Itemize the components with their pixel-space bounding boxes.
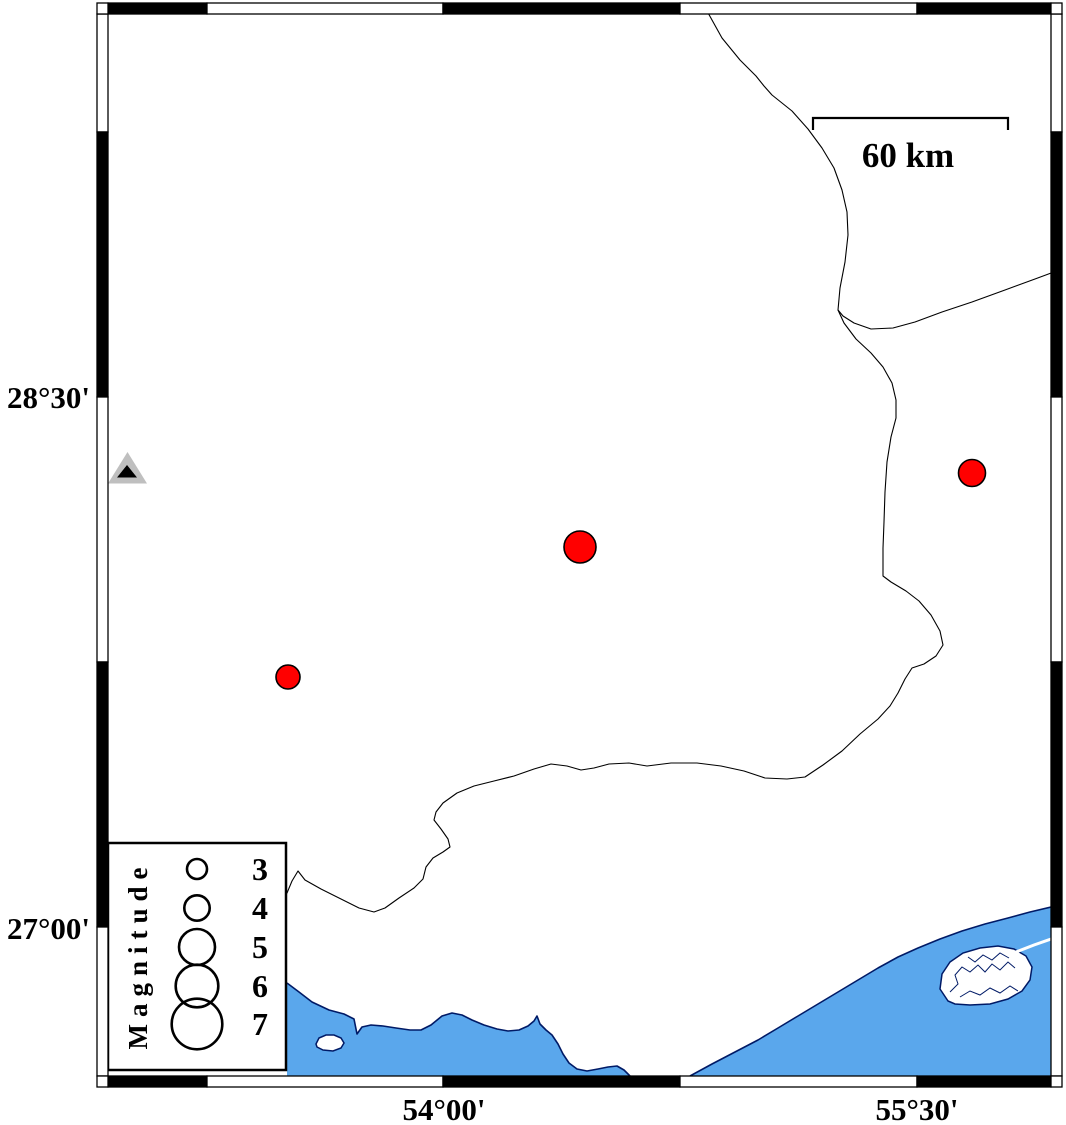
earthquake-epicenter — [276, 665, 300, 689]
lon-label-right: 55°30' — [875, 1092, 958, 1125]
frame-segment — [1051, 132, 1062, 397]
seismicity-map: 60 km Magnitude 34567 28°30' 27°00' 54°0… — [0, 0, 1066, 1125]
island-small — [316, 1035, 344, 1051]
earthquake-epicenter — [564, 531, 596, 563]
magnitude-legend: Magnitude 34567 — [108, 843, 286, 1070]
figure-page: 60 km Magnitude 34567 28°30' 27°00' 54°0… — [0, 0, 1066, 1125]
earthquake-epicenter — [959, 460, 986, 487]
frame-segment — [680, 1076, 917, 1087]
frame-segment — [97, 132, 108, 397]
frame-corner — [97, 3, 108, 14]
frame-segment — [108, 1076, 207, 1087]
lon-label-left: 54°00' — [402, 1092, 485, 1125]
legend-magnitude-label: 7 — [252, 1006, 268, 1042]
legend-magnitude-label: 4 — [252, 890, 268, 926]
frame-segment — [917, 1076, 1051, 1087]
scalebar-label: 60 km — [862, 136, 954, 175]
frame-segment — [207, 1076, 443, 1087]
legend-title: Magnitude — [123, 860, 153, 1049]
frame-segment — [108, 3, 207, 14]
frame-segment — [1051, 14, 1062, 132]
legend-magnitude-label: 3 — [252, 851, 268, 887]
frame-corner — [97, 1076, 108, 1087]
frame-segment — [680, 3, 917, 14]
frame-segment — [1051, 927, 1062, 1076]
frame-segment — [443, 3, 680, 14]
frame-segment — [443, 1076, 680, 1087]
legend-magnitude-label: 5 — [252, 929, 268, 965]
frame-corner — [1051, 1076, 1062, 1087]
frame-segment — [917, 3, 1051, 14]
legend-magnitude-label: 6 — [252, 968, 268, 1004]
lat-label-bottom: 27°00' — [7, 911, 90, 946]
frame-segment — [97, 662, 108, 927]
frame-segment — [207, 3, 443, 14]
lat-label-top: 28°30' — [7, 380, 90, 415]
frame-segment — [97, 14, 108, 132]
frame-segment — [1051, 397, 1062, 662]
frame-segment — [1051, 662, 1062, 927]
frame-segment — [97, 397, 108, 662]
frame-segment — [97, 927, 108, 1076]
frame-corner — [1051, 3, 1062, 14]
